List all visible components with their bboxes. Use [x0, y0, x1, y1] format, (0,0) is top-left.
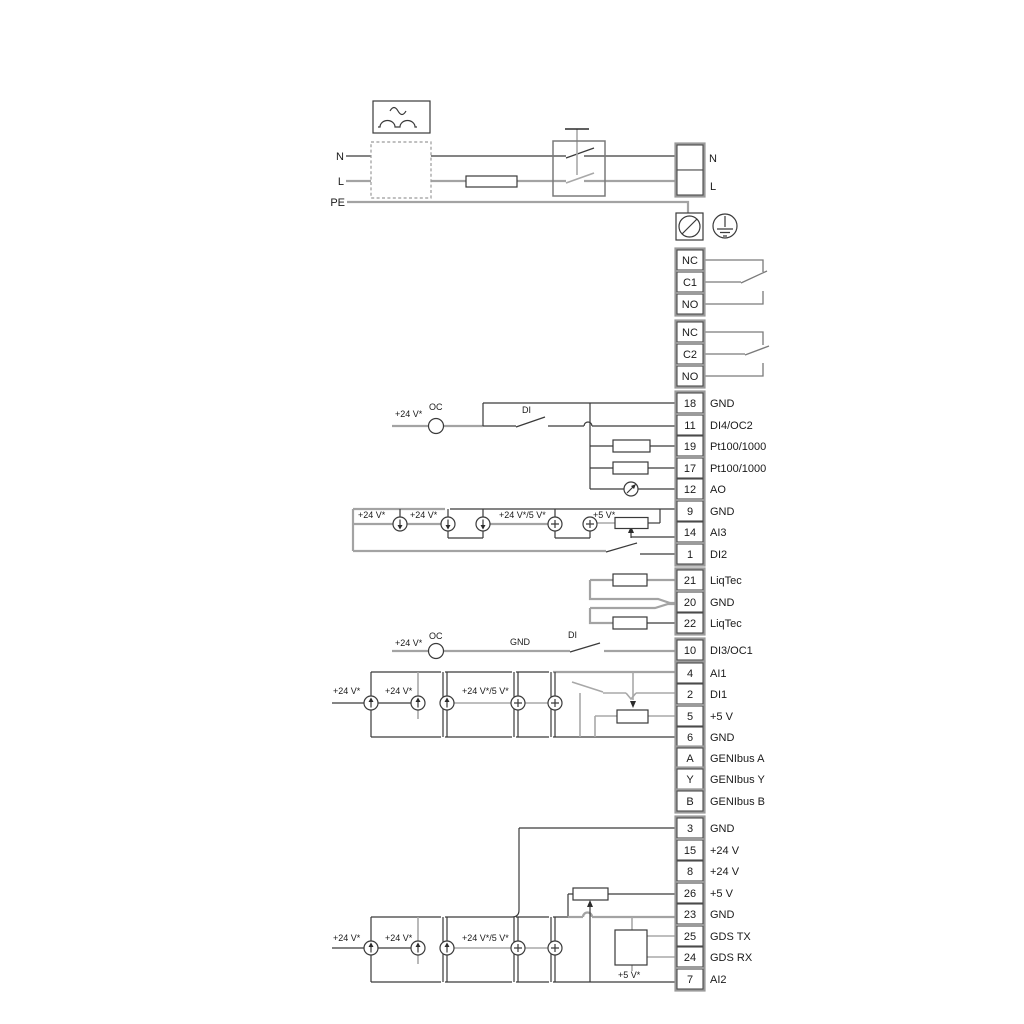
- pe-label: PE: [330, 197, 345, 209]
- potentiometer-symbol: [573, 888, 608, 900]
- terminal-number: 22: [684, 618, 696, 630]
- terminal-group-b: 21 20 22 LiqTec GND LiqTec: [676, 569, 743, 635]
- di-label: DI: [568, 630, 577, 640]
- current-source-up-icon: [411, 941, 425, 955]
- di3-switch-blade: [570, 643, 600, 652]
- v24-label: +24 V*: [395, 638, 423, 648]
- terminal-group-e: 3 15 8 26 23 25 24 7 GND +24 V +24 V +5 …: [676, 817, 753, 991]
- terminal-group-d: 4 2 5 6 AI1 DI1 +5 V GND: [676, 662, 735, 749]
- current-source-down-icon: [476, 517, 490, 531]
- di1-switch-blade: [572, 682, 603, 692]
- v24v5-label: +24 V*/5 V*: [462, 933, 509, 943]
- relay1-contact-blade: [741, 271, 767, 283]
- sensor-resistor-symbol: [613, 617, 647, 629]
- wiper-arrow-up: [587, 900, 593, 907]
- v24-label: +24 V*: [333, 686, 361, 696]
- terminal-label: AI3: [710, 527, 727, 539]
- pe-wire: [347, 202, 688, 213]
- v24v5-label: +24 V*/5 V*: [499, 510, 546, 520]
- terminal-label: AO: [710, 484, 726, 496]
- terminal-label: +5 V: [710, 888, 734, 900]
- relay1-no: NO: [682, 299, 699, 311]
- terminal-label: GND: [710, 909, 735, 921]
- terminal-label: +5 V: [710, 711, 734, 723]
- terminal-number: 12: [684, 484, 696, 496]
- pe-terminal-symbol: [676, 213, 703, 240]
- potentiometer-symbol: [615, 518, 648, 529]
- mains-filter-symbol: [373, 101, 430, 133]
- terminal-label: DI4/OC2: [710, 420, 753, 432]
- terminal-number: 23: [684, 909, 696, 921]
- wire-hop: [584, 422, 592, 426]
- v24-label: +24 V*: [333, 933, 361, 943]
- wiring-diagram: NC C1 NO NC C2 NO: [0, 0, 1024, 1024]
- terminal-number: 6: [687, 732, 693, 744]
- terminal-number: 8: [687, 866, 693, 878]
- groupD-wiring: [332, 672, 677, 737]
- relay2-contact-blade: [745, 346, 769, 355]
- l-label: L: [338, 176, 344, 188]
- terminal-number: 21: [684, 575, 696, 587]
- terminal-label: LiqTec: [710, 618, 742, 630]
- terminal-group-genibus: A Y B GENIbus A GENIbus Y GENIbus B: [676, 747, 766, 813]
- terminal-number: 4: [687, 668, 693, 680]
- terminal-cell-n: [677, 145, 703, 170]
- terminal-label: DI3/OC1: [710, 645, 753, 657]
- terminal-number: 11: [684, 420, 695, 432]
- terminal-group-relay1: NC C1 NO: [676, 249, 705, 316]
- terminal-number: 15: [684, 845, 696, 857]
- voltage-source-icon: [548, 696, 562, 710]
- groupD-components: [364, 696, 648, 723]
- voltage-source-icon: [548, 941, 562, 955]
- terminal-number: 10: [684, 645, 696, 657]
- current-source-down-icon: [441, 517, 455, 531]
- terminal-number: Y: [686, 774, 694, 786]
- v24-label: +24 V*: [385, 933, 413, 943]
- ao-meter-symbol: [624, 482, 638, 496]
- terminal-number: A: [686, 753, 694, 765]
- di2-switch-blade: [606, 543, 637, 552]
- wire-hop: [583, 913, 592, 917]
- terminal-label: GDS TX: [710, 931, 751, 943]
- terminal-number: 2: [687, 689, 693, 701]
- terminal-label: GND: [710, 732, 735, 744]
- terminal-label: +24 V: [710, 866, 740, 878]
- terminal-number: 26: [684, 888, 696, 900]
- terminal-group-relay2: NC C2 NO: [676, 321, 705, 388]
- terminal-label: DI2: [710, 549, 727, 561]
- terminal-cell-l: [677, 170, 703, 195]
- terminal-group-c: 10 DI3/OC1: [676, 639, 753, 662]
- terminal-group-a: 18 11 19 17 12 9 14 1 GND DI4/OC2 Pt100/…: [676, 392, 767, 566]
- fuse-symbol: [466, 176, 517, 187]
- current-source-up-icon: [364, 941, 378, 955]
- dashed-module-box: [371, 142, 431, 198]
- terminal-number: 24: [684, 952, 696, 964]
- terminal-number: 18: [684, 398, 696, 410]
- relay2-nc: NC: [682, 327, 698, 339]
- pt100-resistor-symbol: [613, 462, 648, 474]
- relay2-no: NO: [682, 371, 699, 383]
- terminal-label: AI2: [710, 974, 727, 986]
- terminal-label: DI1: [710, 689, 727, 701]
- current-source-down-icon: [393, 517, 407, 531]
- terminal-label: GND: [710, 506, 735, 518]
- v24-label: +24 V*: [395, 409, 423, 419]
- terminal-number: 19: [684, 441, 696, 453]
- open-collector-symbol: [429, 419, 444, 434]
- voltage-source-icon: [511, 941, 525, 955]
- oc-label: OC: [429, 402, 443, 412]
- l-right-label: L: [710, 181, 716, 193]
- wire-hop: [626, 693, 636, 699]
- v5-label: +5 V*: [593, 510, 616, 520]
- current-source-up-icon: [440, 941, 454, 955]
- terminal-label: GND: [710, 823, 735, 835]
- terminal-label: GENIbus B: [710, 796, 765, 808]
- liqtec-components: [613, 574, 647, 629]
- relay1-c1: C1: [683, 277, 697, 289]
- potentiometer-symbol: [617, 710, 648, 723]
- terminal-label: GENIbus Y: [710, 774, 765, 786]
- v24-label: +24 V*: [385, 686, 413, 696]
- terminal-number: 5: [687, 711, 693, 723]
- terminal-number: 7: [687, 974, 693, 986]
- terminal-label: GDS RX: [710, 952, 753, 964]
- wiper-arrow-down: [630, 701, 636, 708]
- relay2-wiring: [703, 332, 769, 376]
- terminal-label: AI1: [710, 668, 727, 680]
- sensor-resistor-symbol: [613, 574, 647, 586]
- oc-label: OC: [429, 631, 443, 641]
- relay1-wiring: [703, 260, 767, 304]
- pt100-resistor-symbol: [613, 440, 650, 452]
- voltage-source-icon: [548, 517, 562, 531]
- gnd-label: GND: [510, 637, 531, 647]
- terminal-number: 20: [684, 597, 696, 609]
- di-switch-blade: [516, 417, 545, 427]
- earth-ground-icon: [713, 214, 737, 238]
- terminal-label: Pt100/1000: [710, 441, 766, 453]
- mains-switch-box: [553, 141, 605, 196]
- terminal-label: GENIbus A: [710, 753, 765, 765]
- terminal-number: 1: [687, 549, 693, 561]
- terminal-number: 3: [687, 823, 693, 835]
- terminal-label: +24 V: [710, 845, 740, 857]
- terminal-label: GND: [710, 398, 735, 410]
- terminal-label: Pt100/1000: [710, 463, 766, 475]
- terminal-number: B: [686, 796, 693, 808]
- terminal-label: GND: [710, 597, 735, 609]
- terminal-number: 14: [684, 527, 696, 539]
- di-label: DI: [522, 405, 531, 415]
- v24-label: +24 V*: [410, 510, 438, 520]
- terminal-group-mains: [676, 144, 705, 197]
- current-source-up-icon: [364, 696, 378, 710]
- terminal-label: LiqTec: [710, 575, 742, 587]
- wire-junction-curl: [512, 910, 519, 917]
- terminal-number: 25: [684, 931, 696, 943]
- v24-label: +24 V*: [358, 510, 386, 520]
- current-source-up-icon: [411, 696, 425, 710]
- relay1-nc: NC: [682, 255, 698, 267]
- voltage-source-icon: [511, 696, 525, 710]
- open-collector-symbol: [429, 644, 444, 659]
- terminal-number: 9: [687, 506, 693, 518]
- n-right-label: N: [709, 153, 717, 165]
- terminal-number: 17: [684, 463, 696, 475]
- relay2-c2: C2: [683, 349, 697, 361]
- gds-sensor-box: [615, 930, 647, 965]
- current-source-up-icon: [440, 696, 454, 710]
- v24v5-label: +24 V*/5 V*: [462, 686, 509, 696]
- groupE-components: [364, 888, 647, 965]
- n-label: N: [336, 151, 344, 163]
- v5-label: +5 V*: [618, 970, 641, 980]
